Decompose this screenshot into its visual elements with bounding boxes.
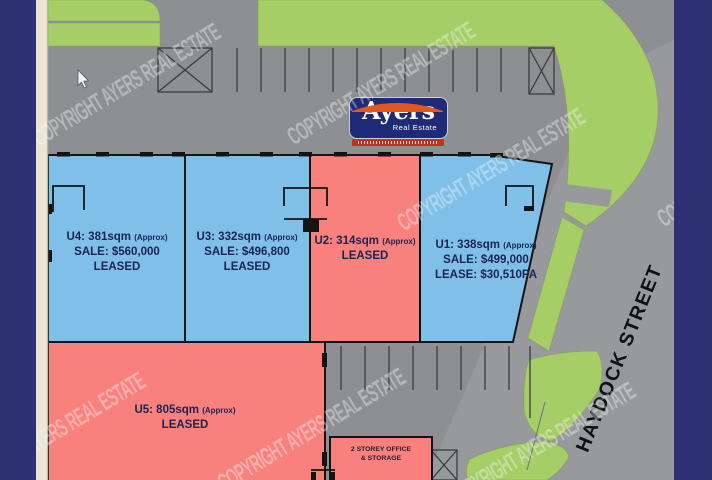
unit-label-u3: U3: 332sqm (Approx) SALE: $496,800 LEASE… [183,230,311,275]
unit-u4-size: U4: 381sqm (Approx) [50,230,184,245]
unit-u2-size: U2: 314sqm (Approx) [308,234,422,249]
cream-strip-edge [47,0,48,480]
ayers-logo: Ayers Real Estate [349,97,448,139]
ayers-logo-box: Ayers Real Estate [349,97,448,139]
stair-block [524,206,534,211]
unit-label-u4: U4: 381sqm (Approx) SALE: $560,000 LEASE… [50,230,184,275]
unit-u3-size: U3: 332sqm (Approx) [183,230,311,245]
logo-swoosh-icon [350,98,445,112]
unit-u5-size: U5: 805sqm (Approx) [110,403,260,418]
unit-u2-status: LEASED [308,249,422,264]
unit-label-u1: U1: 338sqm (Approx) SALE: $499,000 LEASE… [415,238,557,283]
left-border-bar [0,0,36,480]
unit-u1-lease-price: LEASE: $30,510PA [415,268,557,283]
logo-website-bar [352,139,444,146]
right-border-bar [674,0,712,480]
garden-bed-top-left-upper [48,0,160,21]
unit-u4-status: LEASED [50,260,184,275]
unit-u4-price: SALE: $560,000 [50,245,184,260]
unit-u5-status: LEASED [110,418,260,433]
unit-u3-status: LEASED [183,260,311,275]
logo-microtext [358,141,438,144]
garden-bed-top-left-lower [48,23,160,46]
unit-u1-size: U1: 338sqm (Approx) [415,238,557,253]
unit-label-u2: U2: 314sqm (Approx) LEASED [308,234,422,264]
office-label: 2 STOREY OFFICE & STORAGE [332,446,430,463]
cream-strip [36,0,48,480]
site-plan-image: U4: 381sqm (Approx) SALE: $560,000 LEASE… [0,0,712,480]
ayers-logo-tagline: Real Estate [393,123,437,132]
unit-u1-sale-price: SALE: $499,000 [415,253,557,268]
unit-u3-price: SALE: $496,800 [183,245,311,260]
unit-label-u5: U5: 805sqm (Approx) LEASED [110,403,260,433]
